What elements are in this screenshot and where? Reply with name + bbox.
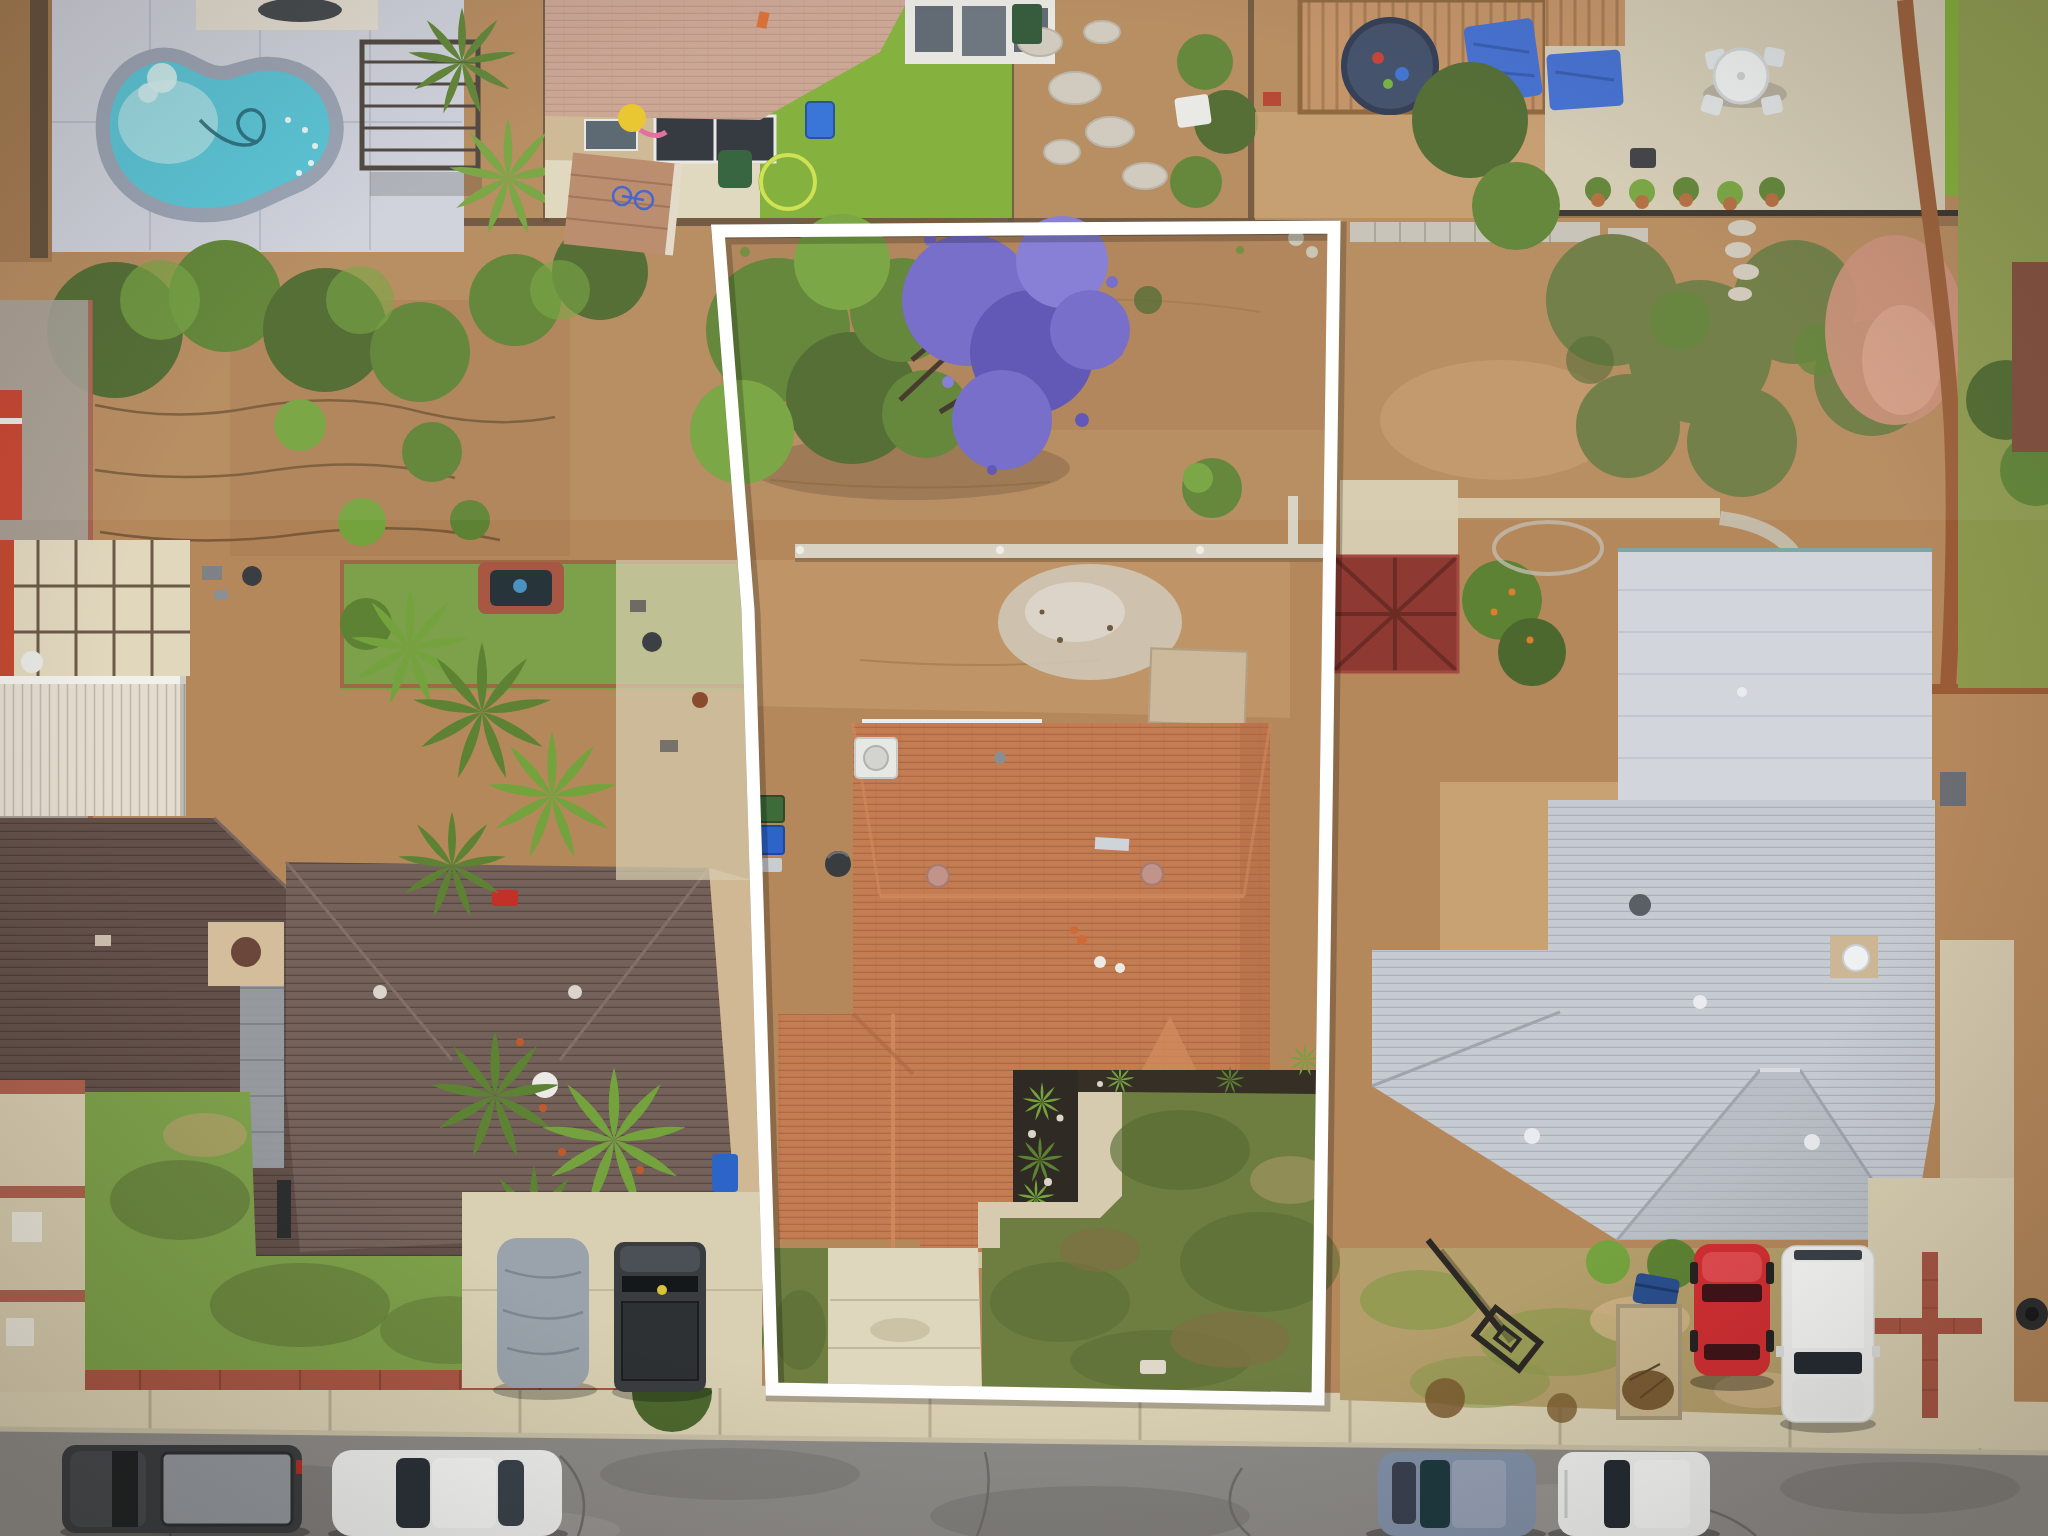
aerial-photo-canvas: [0, 0, 2048, 1536]
haze: [0, 0, 2048, 520]
aerial-photo: [0, 0, 2048, 1536]
